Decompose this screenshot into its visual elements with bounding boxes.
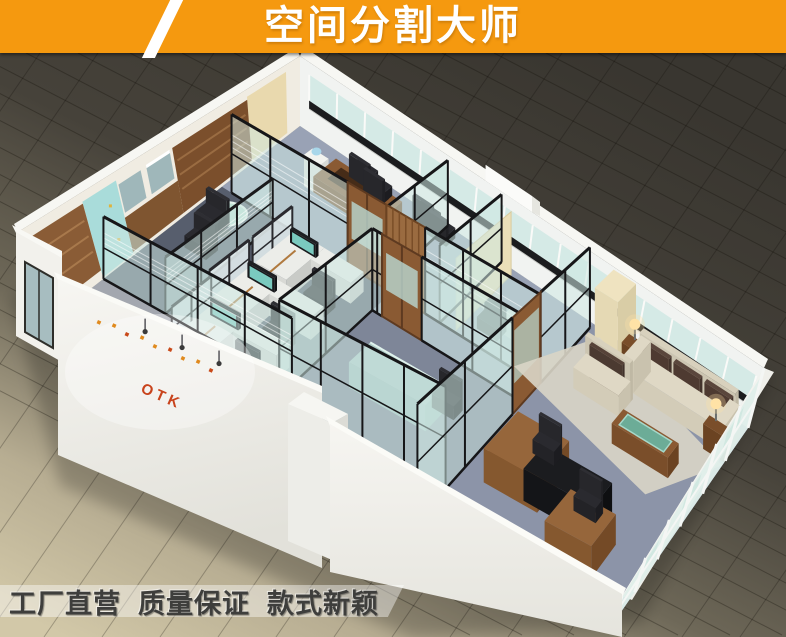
product-image: OTK 空间分割大师 工厂直营 质量保证 款式新颖 xyxy=(0,0,786,637)
office-render: OTK xyxy=(0,0,786,637)
slogan-text-1: 工厂直营 xyxy=(9,582,121,621)
banner-title: 空间分割大师 xyxy=(264,0,522,53)
slogan-text-3: 款式新颖 xyxy=(267,582,379,621)
banner: 空间分割大师 xyxy=(0,0,786,53)
slogan-band: 工厂直营 质量保证 款式新颖 xyxy=(0,585,404,617)
slash-icon xyxy=(142,0,185,58)
slogan-text-2: 质量保证 xyxy=(138,582,250,621)
